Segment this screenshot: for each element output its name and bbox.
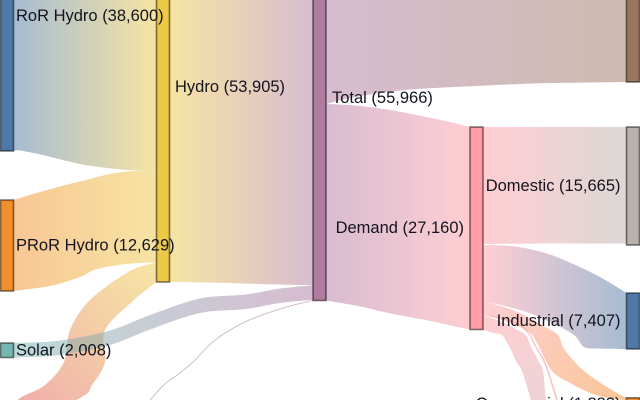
svg-text:Commercial (1,883): Commercial (1,883) [476, 395, 621, 400]
svg-text:Total (55,966): Total (55,966) [332, 89, 433, 107]
svg-text:Industrial (7,407): Industrial (7,407) [497, 312, 621, 330]
svg-text:RoR Hydro (38,600): RoR Hydro (38,600) [16, 7, 164, 25]
svg-text:Demand (27,160): Demand (27,160) [336, 219, 464, 237]
svg-text:PRoR Hydro (12,629): PRoR Hydro (12,629) [16, 237, 175, 255]
svg-text:Hydro (53,905): Hydro (53,905) [175, 78, 285, 96]
svg-text:Solar (2,008): Solar (2,008) [16, 342, 111, 360]
svg-text:Domestic (15,665): Domestic (15,665) [486, 177, 621, 195]
